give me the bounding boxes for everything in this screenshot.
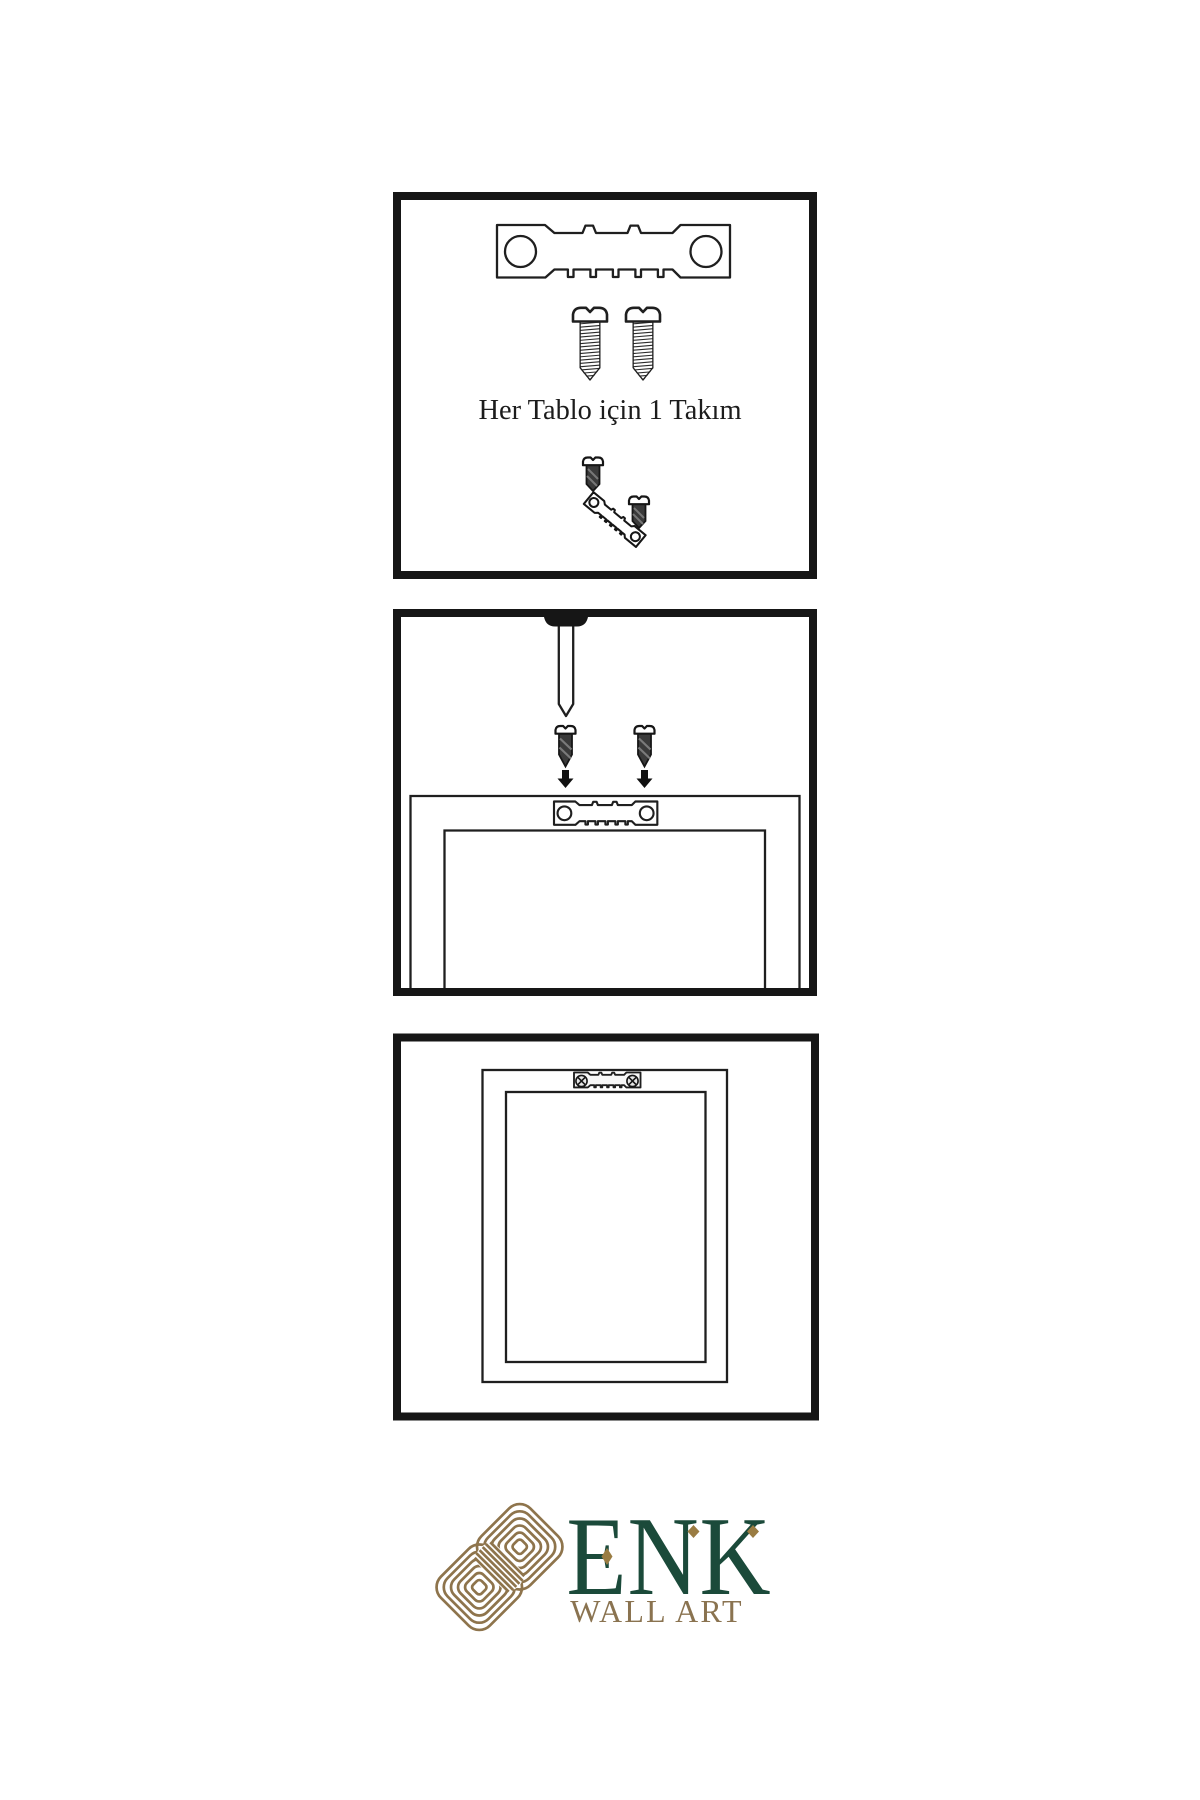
- svg-text:WALL ART: WALL ART: [570, 1593, 744, 1629]
- svg-text:Her Tablo için 1 Takım: Her Tablo için 1 Takım: [478, 395, 741, 426]
